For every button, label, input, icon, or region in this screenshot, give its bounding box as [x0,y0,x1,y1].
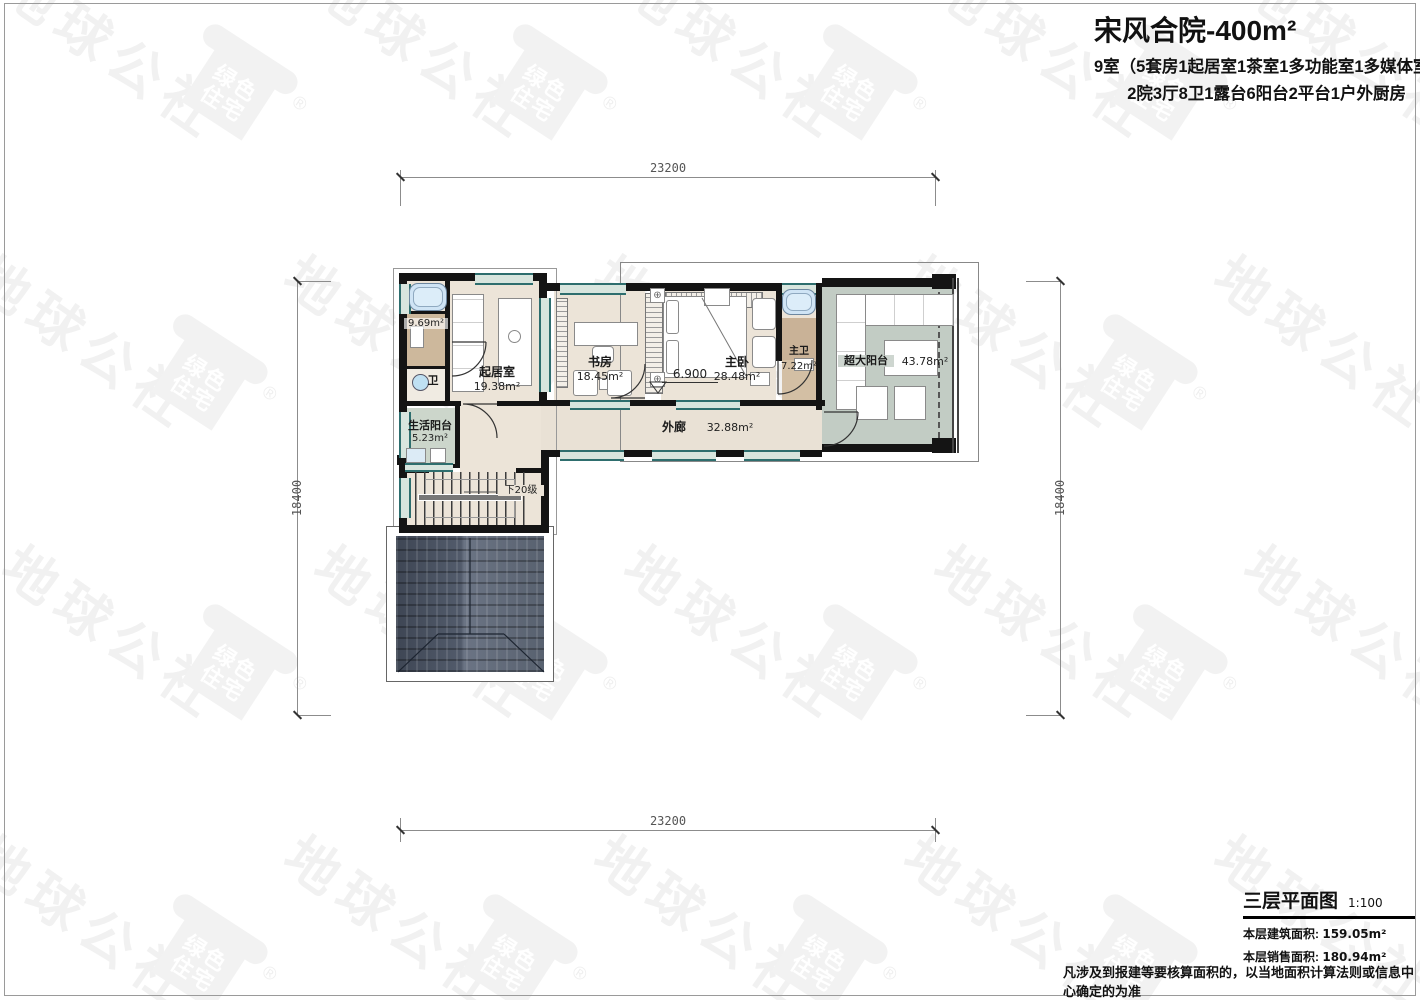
wall [822,444,944,452]
dim-ext [297,281,331,282]
window [560,283,626,295]
area-bath: 9.69m² [404,318,448,329]
bathtub [409,283,447,311]
dim-ext [1026,281,1060,282]
built-area-row: 本层建筑面积: 159.05m² [1243,925,1415,942]
room-life-balcony: 生活阳台 [401,420,459,432]
built-area-label: 本层建筑面积: [1243,927,1322,941]
outdoor-chair [894,386,926,420]
window [652,450,716,461]
level-mark: 6.900 [662,368,718,383]
dim-value-left: 18400 [290,438,304,558]
dim-value-bottom: 23200 [608,814,728,828]
table-decor [508,330,521,343]
laundry-sink [430,448,446,463]
footnote-disclaimer: 凡涉及到报建等要核算面积的，以当地面积计算法则或信息中心确定的为准 [1063,962,1415,1000]
sink-counter [410,326,424,348]
wall [822,278,944,287]
outdoor-chair [856,386,888,420]
drawing-sheet: 地球公社 地球公社 地球公社 地球公社 地球公社 地球公社 地球公社 地球公社 … [0,0,1420,1000]
sheet-frame [4,3,1416,996]
area-living: 19.38m² [455,381,539,393]
room-wc: 卫 [424,375,442,387]
nightstand: ⊕ [650,288,665,303]
window [676,400,740,410]
stairs-note: 下20级 [498,485,544,496]
room-corridor: 外廊 [652,421,696,434]
wall [407,311,445,314]
subtitle-features: 2院3厅8卫1露台6阳台2平台1户外厨房 [1094,80,1406,104]
window [539,298,551,392]
area-corridor: 32.88m² [700,422,760,434]
balcony-rail [957,278,959,453]
window [744,450,800,461]
room-master-bath: 主卫 [781,346,817,357]
armchair [752,298,776,330]
area-master-bath: 7.22m² [778,361,820,372]
tv-cabinet [704,288,730,306]
page-title: 宋风合院-400m² [1094,16,1406,47]
dim-ext [1026,715,1060,716]
drawing-name: 三层平面图 [1243,886,1338,913]
built-area-value: 159.05m² [1322,927,1386,941]
room-big-balcony: 超大阳台 [838,355,894,367]
room-study: 书房 [566,356,634,369]
bathtub [782,289,816,315]
dim-line-bottom [400,830,936,831]
drawing-title-block: 三层平面图 1:100 本层建筑面积: 159.05m² 本层销售面积: 180… [1243,886,1415,965]
drawing-scale: 1:100 [1348,896,1383,910]
wall [497,401,547,406]
pillow [666,300,679,334]
washer [406,448,426,463]
desk [574,322,638,346]
window [570,400,630,410]
wall [399,525,547,533]
window [405,463,453,472]
dim-value-right: 18400 [1053,438,1067,558]
drawing-name-row: 三层平面图 1:100 [1243,886,1415,919]
dim-ext [297,715,331,716]
area-big-balcony: 43.78m² [896,356,954,368]
room-living: 起居室 [455,366,539,379]
window [560,450,624,461]
dim-line-top [400,177,936,178]
window [399,478,411,518]
wall [407,366,445,369]
title-block-header: 宋风合院-400m² 9室（5套房1起居室1茶室1多功能室1多媒体室） 2院3厅… [1094,16,1406,104]
subtitle-rooms: 9室（5套房1起居室1茶室1多功能室1多媒体室） [1094,53,1406,77]
wall [399,401,461,406]
window [475,273,533,285]
roof-tiles [396,536,544,672]
area-study: 18.45m² [566,371,634,383]
area-life-balcony: 5.23m² [401,433,459,444]
dim-value-top: 23200 [608,161,728,175]
